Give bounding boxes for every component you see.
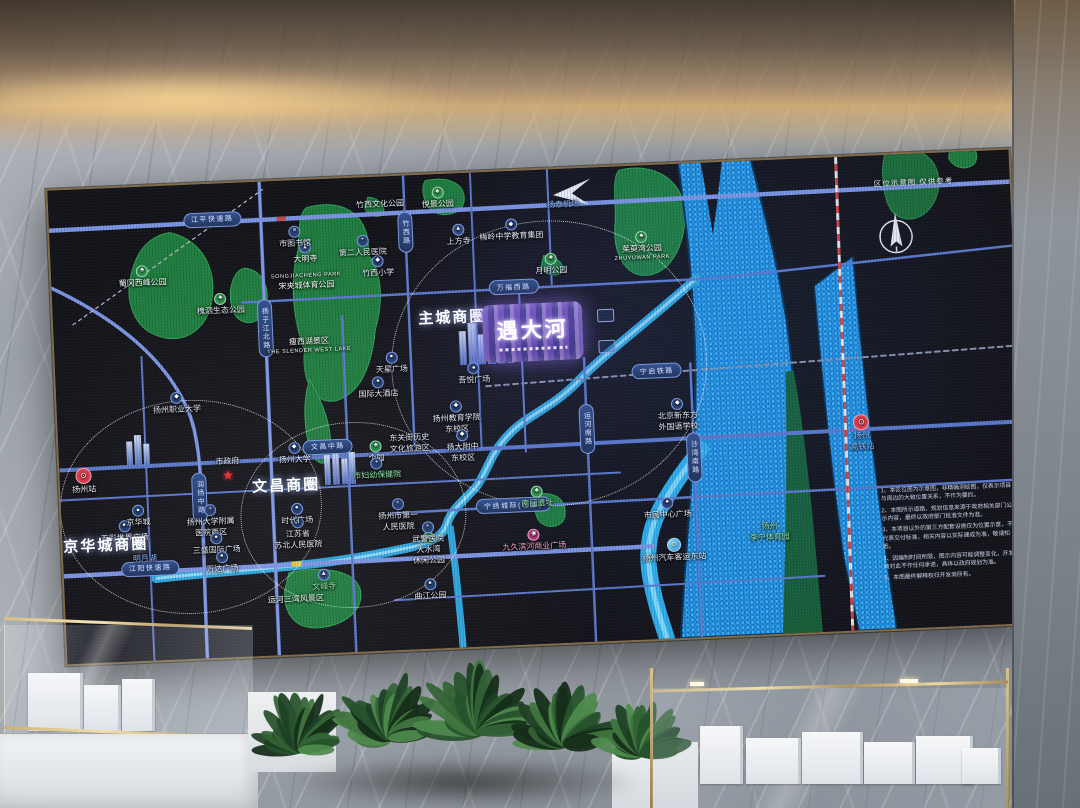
photo-stage: 江平快速路万福西路文昌中路江阳快速路宁扬城际(在建)宁启铁路扬子江北路竹西路润扬… [0, 0, 1080, 808]
park-icon: ♣ [545, 252, 558, 265]
city-government: ★市政府 [215, 456, 240, 484]
star-icon: ★ [222, 467, 234, 484]
legend-box [596, 309, 614, 323]
wuyue-plaza: ●吾悦广场 [458, 362, 491, 386]
yangda-fuzhong: ◆扬大附中东校区 [446, 428, 479, 463]
train-icon: ⊙ [75, 467, 92, 484]
marble-pillar [1012, 0, 1080, 808]
bus-icon: ⊙ [667, 538, 682, 553]
shangfang-temple: ▲上方寺 [446, 223, 471, 247]
jiangping-expressway: 江平快速路 [183, 211, 242, 228]
lib-icon: ≡ [288, 225, 301, 238]
mingyue-lake: 明月湖 [133, 554, 157, 565]
dongguan-street: 东关街历史文化旅游区 [389, 432, 430, 455]
yangtai-airport: 扬泰机场 [547, 199, 579, 210]
wanda-plaza: ●万达广场 [206, 551, 239, 575]
hosp-icon: + [421, 521, 434, 534]
cove-light-hotspot [0, 62, 620, 128]
lining-sports-park: 扬州李宁体育园 [749, 521, 790, 544]
wujing-hospital: +武警医院 [411, 521, 444, 545]
new-oriental-school: ◆北京新东方外国语学校 [657, 397, 698, 433]
biz-zhucheng: 主城商圈 [418, 307, 487, 329]
school-icon: ◆ [456, 429, 469, 442]
nanmen-site: ♣南门遗址 [521, 485, 554, 509]
zhuxi-culture-park: 竹西文化公园 [356, 199, 404, 211]
map-labels-layer: 江平快速路万福西路文昌中路江阳快速路宁扬城际(在建)宁启铁路扬子江北路竹西路润扬… [47, 150, 1028, 665]
times-square: ●时代广场 [281, 502, 314, 526]
plants-row [230, 630, 700, 808]
yangzhou-university: ◆扬州大学 [278, 441, 311, 465]
mall-icon: ● [372, 376, 385, 389]
case-pedestal [0, 734, 258, 808]
songjiacheng-park: SONGJIACHENG PARK宋夹城体育公园 [271, 271, 342, 292]
slender-west-lake: 瘦西湖景区THE SLENDER WEST LAKE [267, 335, 352, 356]
led-map-screen: 江平快速路万福西路文昌中路江阳快速路宁扬城际(在建)宁启铁路扬子江北路竹西路润扬… [45, 148, 1031, 667]
biz-wenchang: 文昌商圈 [252, 476, 321, 498]
school-icon: ◆ [671, 398, 684, 411]
mall-icon: ● [210, 532, 223, 545]
model-display-case-right [650, 668, 1012, 808]
school-icon: ◆ [450, 400, 463, 413]
school-icon: ◆ [505, 218, 518, 231]
city-library: ≡市图书馆 [278, 225, 311, 249]
disclaimer-text: 1、本区位图为示意图，非精确测绘图，仅表示项目与周边的大致位置关系，不作为要约。… [880, 482, 1015, 586]
hosp-icon: + [204, 503, 217, 516]
school-icon: ◆ [288, 441, 301, 454]
park-icon: ♣ [635, 230, 648, 243]
park-icon: ♣ [136, 265, 149, 278]
hosp-icon: + [370, 457, 383, 470]
zhuxi-primary-school: ◆竹西小学 [361, 255, 394, 279]
park-icon: ♣ [531, 485, 544, 498]
park-icon: ♣ [431, 186, 444, 199]
project-logo: 遇大河 [482, 301, 584, 363]
temple-icon: ▲ [317, 568, 330, 581]
park-icon: ♣ [370, 440, 383, 453]
jiujiu-binhe-plaza: ◉九久滨河商业广场 [502, 527, 567, 553]
pink-icon: ◉ [528, 528, 541, 541]
project-tagline [500, 345, 568, 351]
hosp-icon: + [356, 234, 369, 247]
temple-icon: ▲ [452, 223, 465, 236]
biz-jinghuacheng: 京华城商圈 [63, 535, 149, 557]
mall-icon: ● [291, 503, 304, 516]
jinghuacheng-mall: ●京华城 [126, 505, 151, 529]
shugang-west-park: ♣蜀冈西峰公园 [118, 264, 167, 289]
zhuyuwan-park: ♣茱萸湾公园ZHUYUWAN PARK [613, 229, 670, 262]
international-hotel: ●国际大酒店 [358, 375, 399, 400]
hosp-icon: + [391, 498, 404, 511]
legend-box [598, 340, 616, 354]
shawan-south-road: 沙湾南路 [686, 432, 703, 483]
yangzhou-hsr-station: ⊙扬州高铁站 [849, 414, 875, 453]
civic-center-plaza: ●市民中心广场 [643, 496, 692, 521]
meiling-school: ◆梅岭中学教育集团 [479, 217, 544, 243]
train-icon: ⊙ [853, 414, 870, 431]
tianxing-plaza: ●天星广场 [375, 351, 408, 375]
yuejing-park: ♣悦景公园 [421, 186, 454, 210]
zhuxi-road: 竹西路 [397, 211, 414, 253]
maternity-hospital: +市妇幼保健院 [352, 456, 401, 481]
ningqi-railway: 宁启铁路 [632, 363, 683, 380]
model-display-case-left [0, 615, 258, 808]
park-icon: ♣ [214, 293, 227, 306]
yangzhou-station: ⊙扬州站 [71, 467, 96, 495]
qujiang-park: ●曲江公园 [414, 577, 447, 601]
mall-icon: ● [661, 496, 674, 509]
huaisi-eco-park: ♣槐泗生态公园 [196, 292, 245, 317]
mall-icon: ● [216, 551, 229, 564]
bus-east-station: ⊙扬州汽车客运东站 [642, 537, 707, 565]
sanwan-scenic-area: 运河三湾风景区 [268, 594, 324, 606]
mall-icon: ● [132, 505, 145, 518]
mall-icon: ● [468, 362, 481, 375]
wenfeng-temple: ▲文峰寺 [311, 568, 336, 592]
yangzhou-polytechnic: ◆扬州职业大学 [152, 391, 201, 416]
yueming-park: ♣月明公园 [535, 252, 568, 276]
mall-icon: ● [385, 352, 398, 365]
project-name: 遇大河 [496, 312, 569, 345]
mall-icon: ● [424, 578, 437, 591]
school-icon: ◆ [170, 392, 183, 405]
yunhe-south-road: 运河南路 [579, 403, 596, 454]
second-peoples-hospital: +第二人民医院 [338, 234, 387, 259]
wanfu-west-road: 万福西路 [488, 278, 539, 295]
